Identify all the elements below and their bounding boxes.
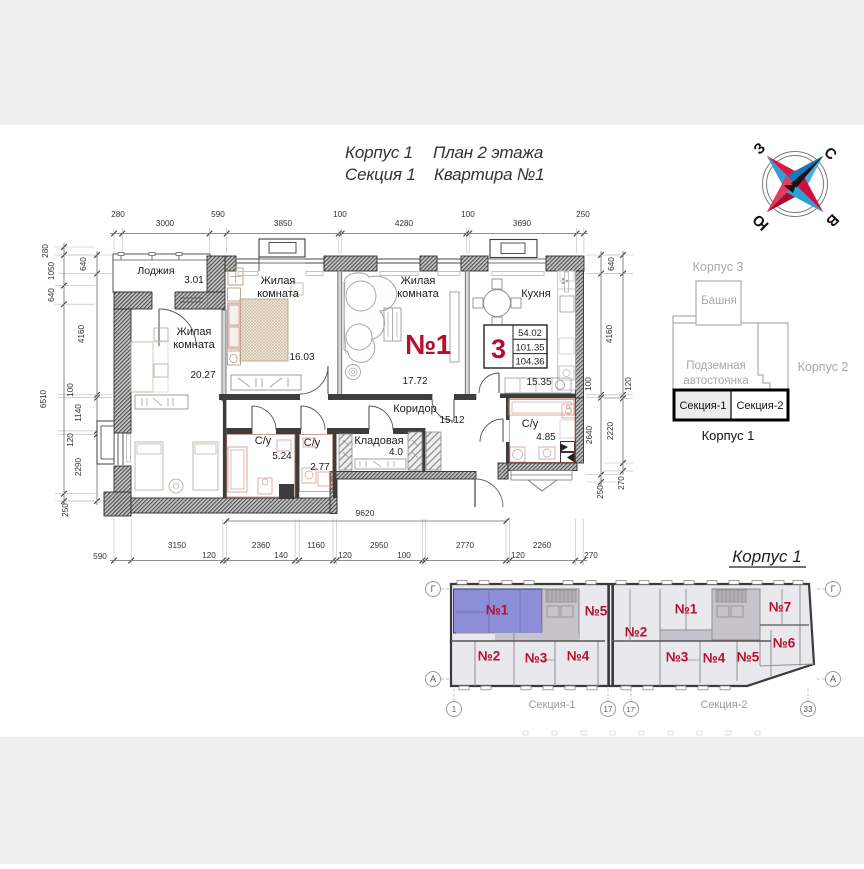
svg-text:№7: №7 — [769, 600, 792, 615]
svg-text:Корпус 3: Корпус 3 — [693, 260, 744, 274]
svg-text:3.01: 3.01 — [184, 275, 204, 286]
svg-text:590: 590 — [93, 552, 107, 561]
svg-text:А: А — [430, 674, 436, 684]
svg-text:Г: Г — [431, 584, 436, 594]
svg-text:20.27: 20.27 — [190, 370, 215, 381]
svg-text:С/у: С/у — [255, 435, 272, 447]
svg-text:автостоянка: автостоянка — [683, 375, 749, 387]
svg-text:2260: 2260 — [533, 541, 552, 550]
svg-text:Секция-2: Секция-2 — [700, 699, 747, 711]
svg-text:Коридор: Коридор — [393, 403, 436, 415]
svg-text:№2: №2 — [478, 649, 501, 664]
svg-text:4280: 4280 — [395, 219, 414, 228]
svg-text:4.85: 4.85 — [536, 432, 556, 443]
svg-text:120: 120 — [66, 433, 75, 447]
svg-text:3: 3 — [491, 334, 506, 364]
svg-text:6510: 6510 — [39, 389, 48, 408]
svg-text:№4: №4 — [703, 651, 726, 666]
svg-text:Секция-1: Секция-1 — [679, 400, 726, 412]
svg-text:Жилая: Жилая — [177, 326, 212, 338]
svg-text:33: 33 — [804, 705, 813, 714]
svg-text:15.12: 15.12 — [439, 415, 464, 426]
svg-text:5.24: 5.24 — [272, 451, 292, 462]
svg-text:2.77: 2.77 — [310, 462, 330, 473]
svg-text:100: 100 — [461, 210, 475, 219]
svg-text:2950: 2950 — [370, 541, 389, 550]
svg-text:54.02: 54.02 — [518, 328, 542, 339]
svg-text:280: 280 — [41, 244, 50, 258]
svg-text:№6: №6 — [773, 636, 796, 651]
svg-text:140: 140 — [274, 551, 288, 560]
svg-text:4160: 4160 — [77, 324, 86, 343]
svg-text:1160: 1160 — [307, 541, 325, 550]
svg-text:Корпус 1: Корпус 1 — [702, 428, 755, 443]
svg-text:3000: 3000 — [156, 219, 175, 228]
svg-text:Секция-2: Секция-2 — [736, 400, 783, 412]
svg-text:А: А — [830, 674, 836, 684]
svg-text:100: 100 — [584, 377, 593, 391]
svg-text:Башня: Башня — [701, 295, 737, 307]
svg-text:120: 120 — [511, 551, 525, 560]
svg-text:1: 1 — [452, 705, 457, 714]
svg-text:270: 270 — [584, 551, 598, 560]
svg-text:Секция 1: Секция 1 — [345, 165, 416, 184]
svg-text:Корпус 1: Корпус 1 — [732, 547, 801, 566]
svg-text:17': 17' — [626, 707, 635, 714]
svg-text:С/у: С/у — [522, 418, 539, 430]
svg-text:Кухня: Кухня — [521, 288, 550, 300]
svg-text:Секция-1: Секция-1 — [528, 699, 575, 711]
svg-text:2290: 2290 — [74, 457, 83, 476]
svg-text:16.03: 16.03 — [289, 352, 314, 363]
svg-text:Корпус 1: Корпус 1 — [345, 143, 413, 162]
svg-text:250: 250 — [61, 503, 70, 517]
svg-text:комната: комната — [173, 339, 215, 351]
svg-text:Жилая: Жилая — [401, 275, 436, 287]
svg-text:3150: 3150 — [168, 541, 187, 550]
svg-text:3850: 3850 — [274, 219, 293, 228]
svg-text:2640: 2640 — [585, 425, 594, 444]
svg-text:№1: №1 — [675, 602, 698, 617]
svg-text:3690: 3690 — [513, 219, 532, 228]
svg-text:С/у: С/у — [304, 437, 321, 449]
svg-text:№4: №4 — [567, 649, 590, 664]
svg-text:590: 590 — [211, 210, 225, 219]
svg-text:640: 640 — [79, 257, 88, 271]
svg-text:Лоджия: Лоджия — [137, 265, 174, 277]
svg-text:№1: №1 — [405, 329, 451, 360]
svg-text:№1: №1 — [486, 603, 509, 618]
svg-text:270: 270 — [617, 476, 626, 490]
svg-text:комната: комната — [397, 288, 439, 300]
svg-text:Подземная: Подземная — [686, 360, 746, 372]
svg-text:4160: 4160 — [605, 324, 614, 343]
svg-text:№2: №2 — [625, 625, 648, 640]
svg-text:15.35: 15.35 — [526, 377, 551, 388]
svg-text:1140: 1140 — [74, 404, 83, 422]
svg-text:2770: 2770 — [456, 541, 475, 550]
svg-text:100: 100 — [66, 383, 75, 397]
svg-text:640: 640 — [607, 257, 616, 271]
svg-text:4.0: 4.0 — [389, 447, 403, 458]
svg-text:Г: Г — [831, 584, 836, 594]
svg-text:План 2 этажа: План 2 этажа — [433, 143, 543, 162]
svg-text:17.72: 17.72 — [402, 376, 427, 387]
svg-text:640: 640 — [47, 288, 56, 302]
svg-text:9620: 9620 — [356, 508, 375, 518]
svg-text:1050: 1050 — [47, 261, 56, 280]
svg-text:104.36: 104.36 — [515, 357, 544, 368]
svg-text:100: 100 — [397, 551, 411, 560]
svg-text:120: 120 — [624, 377, 633, 391]
svg-text:280: 280 — [111, 210, 125, 219]
svg-text:Кладовая: Кладовая — [354, 435, 403, 447]
svg-text:комната: комната — [257, 288, 299, 300]
svg-text:№5: №5 — [585, 604, 608, 619]
svg-text:100: 100 — [333, 210, 347, 219]
svg-text:№3: №3 — [525, 651, 548, 666]
svg-text:250: 250 — [596, 485, 605, 499]
svg-text:Квартира №1: Квартира №1 — [434, 165, 544, 184]
svg-text:101.35: 101.35 — [515, 343, 544, 354]
svg-text:120: 120 — [202, 551, 216, 560]
svg-text:2360: 2360 — [252, 541, 271, 550]
svg-text:№3: №3 — [666, 650, 689, 665]
svg-text:№5: №5 — [737, 650, 760, 665]
svg-text:2220: 2220 — [606, 421, 615, 440]
svg-text:Жилая: Жилая — [261, 275, 296, 287]
svg-text:120: 120 — [338, 551, 352, 560]
svg-text:17: 17 — [604, 705, 613, 714]
svg-text:250: 250 — [576, 210, 590, 219]
svg-text:Корпус 2: Корпус 2 — [798, 360, 849, 374]
